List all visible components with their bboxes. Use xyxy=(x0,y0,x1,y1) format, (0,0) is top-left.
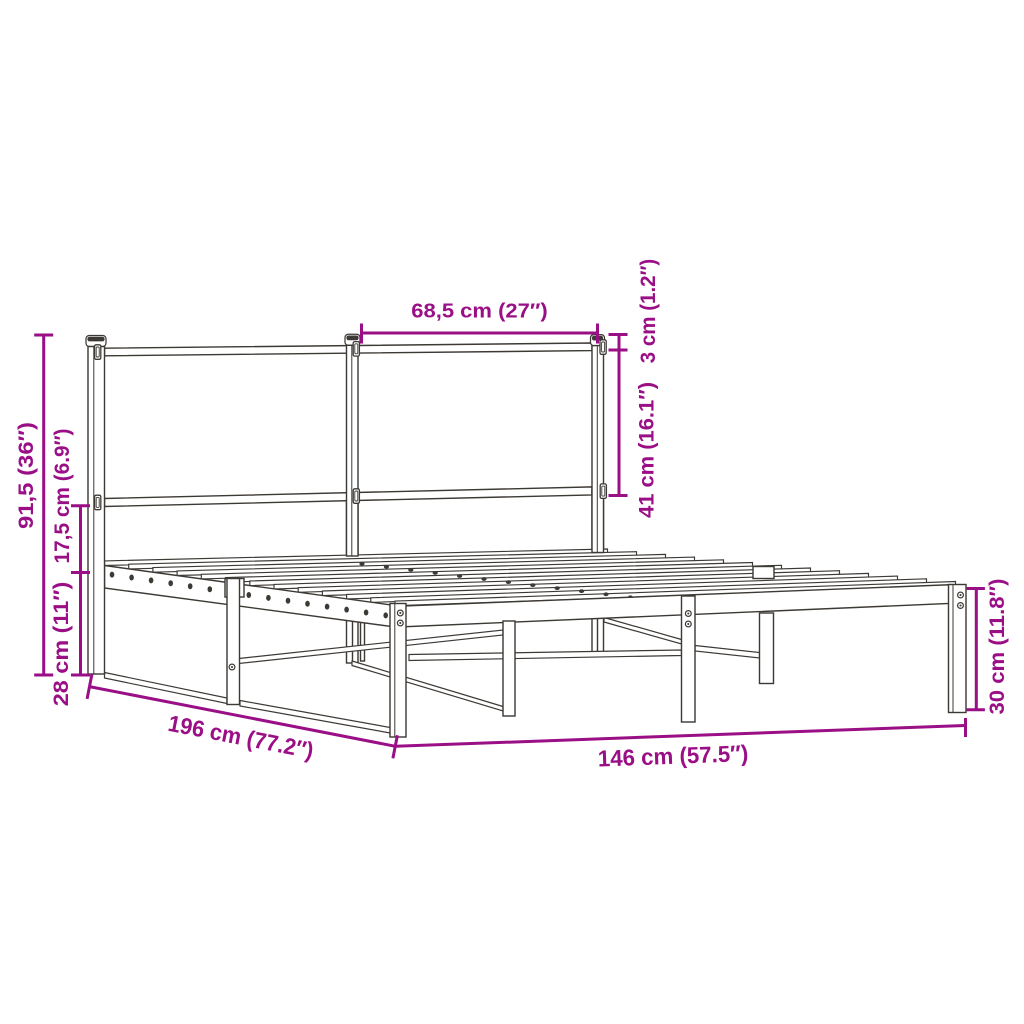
svg-text:41 cm (16.1″): 41 cm (16.1″) xyxy=(636,382,659,518)
svg-text:17,5 cm (6.9″): 17,5 cm (6.9″) xyxy=(51,429,74,564)
svg-text:68,5 cm (27″): 68,5 cm (27″) xyxy=(411,300,548,323)
svg-text:28 cm (11″): 28 cm (11″) xyxy=(50,582,73,707)
svg-text:3 cm (1.2″): 3 cm (1.2″) xyxy=(637,259,660,364)
svg-text:146 cm (57.5″): 146 cm (57.5″) xyxy=(597,740,748,771)
svg-text:91,5 (36″): 91,5 (36″) xyxy=(15,422,38,529)
svg-text:30 cm (11.8″): 30 cm (11.8″) xyxy=(986,579,1009,715)
